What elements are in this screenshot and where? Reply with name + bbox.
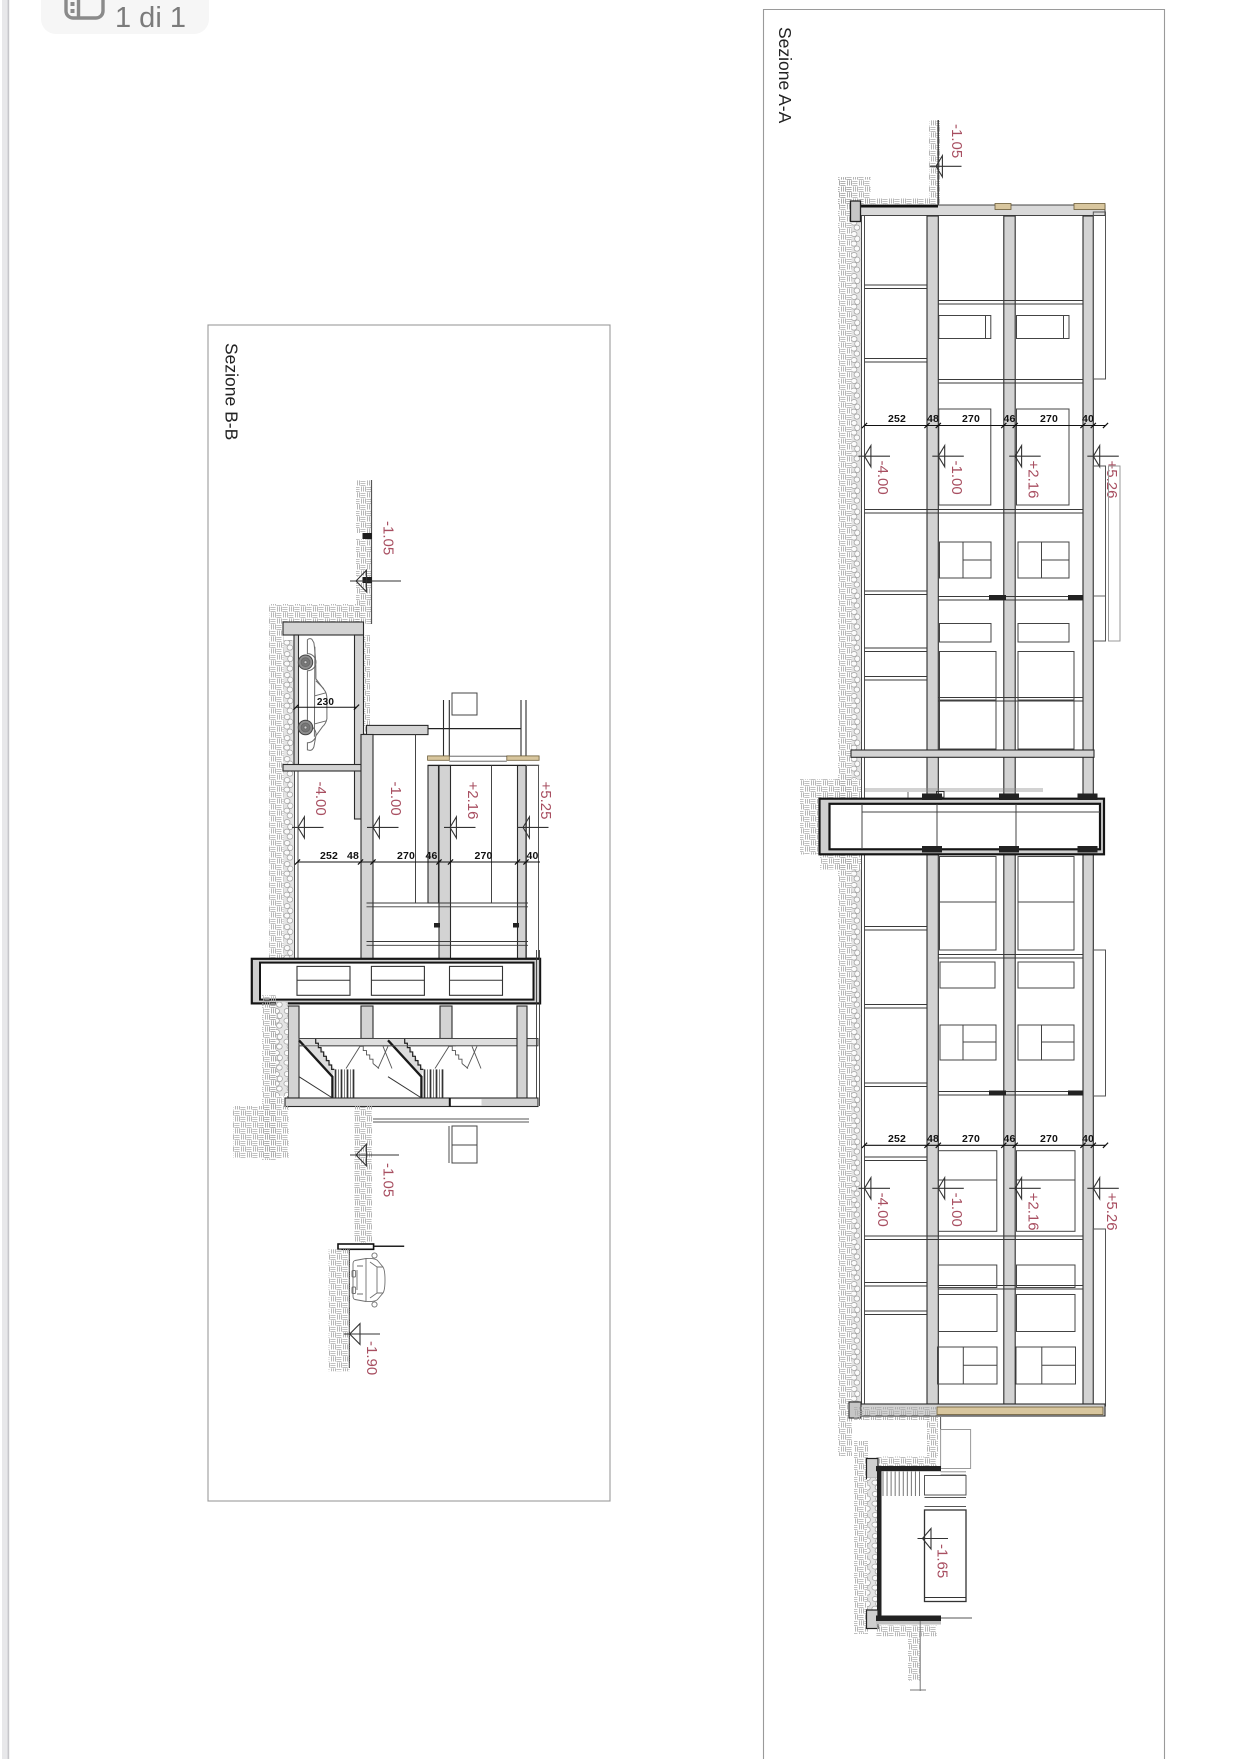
svg-text:252: 252 [320,850,338,862]
svg-text:-1.00: -1.00 [387,782,404,816]
svg-text:270: 270 [474,850,492,862]
svg-text:40: 40 [1082,1133,1094,1145]
svg-text:48: 48 [927,413,939,425]
svg-text:Sezione A-A: Sezione A-A [775,27,795,124]
svg-text:270: 270 [962,413,980,425]
svg-text:1 di 1: 1 di 1 [115,2,186,34]
svg-text:+2.16: +2.16 [1025,1193,1042,1231]
svg-text:+2.16: +2.16 [464,782,481,820]
svg-text:-1.05: -1.05 [948,124,965,158]
svg-text:-1.90: -1.90 [363,1341,380,1375]
svg-text:270: 270 [1040,413,1058,425]
svg-text:Sezione B-B: Sezione B-B [222,343,242,440]
svg-text:-4.00: -4.00 [874,461,891,495]
svg-text:+2.16: +2.16 [1025,461,1042,499]
svg-text:40: 40 [526,850,538,862]
svg-text:46: 46 [1003,1133,1015,1145]
svg-text:-1.05: -1.05 [379,521,396,555]
svg-text:270: 270 [962,1133,980,1145]
svg-text:+5.25: +5.25 [537,782,554,820]
svg-text:48: 48 [927,1133,939,1145]
svg-text:-4.00: -4.00 [312,782,329,816]
svg-text:252: 252 [888,1133,906,1145]
svg-text:-1.65: -1.65 [934,1544,951,1578]
svg-text:-1.00: -1.00 [948,461,965,495]
svg-text:-1.00: -1.00 [948,1193,965,1227]
svg-text:-1.05: -1.05 [379,1163,396,1197]
svg-text:48: 48 [347,850,359,862]
svg-text:-4.00: -4.00 [874,1193,891,1227]
svg-text:270: 270 [397,850,415,862]
svg-text:252: 252 [888,413,906,425]
svg-text:46: 46 [425,850,437,862]
svg-text:+5.26: +5.26 [1103,1193,1120,1231]
svg-text:270: 270 [1040,1133,1058,1145]
svg-text:230: 230 [317,697,335,708]
svg-text:46: 46 [1003,413,1015,425]
svg-text:40: 40 [1082,413,1094,425]
